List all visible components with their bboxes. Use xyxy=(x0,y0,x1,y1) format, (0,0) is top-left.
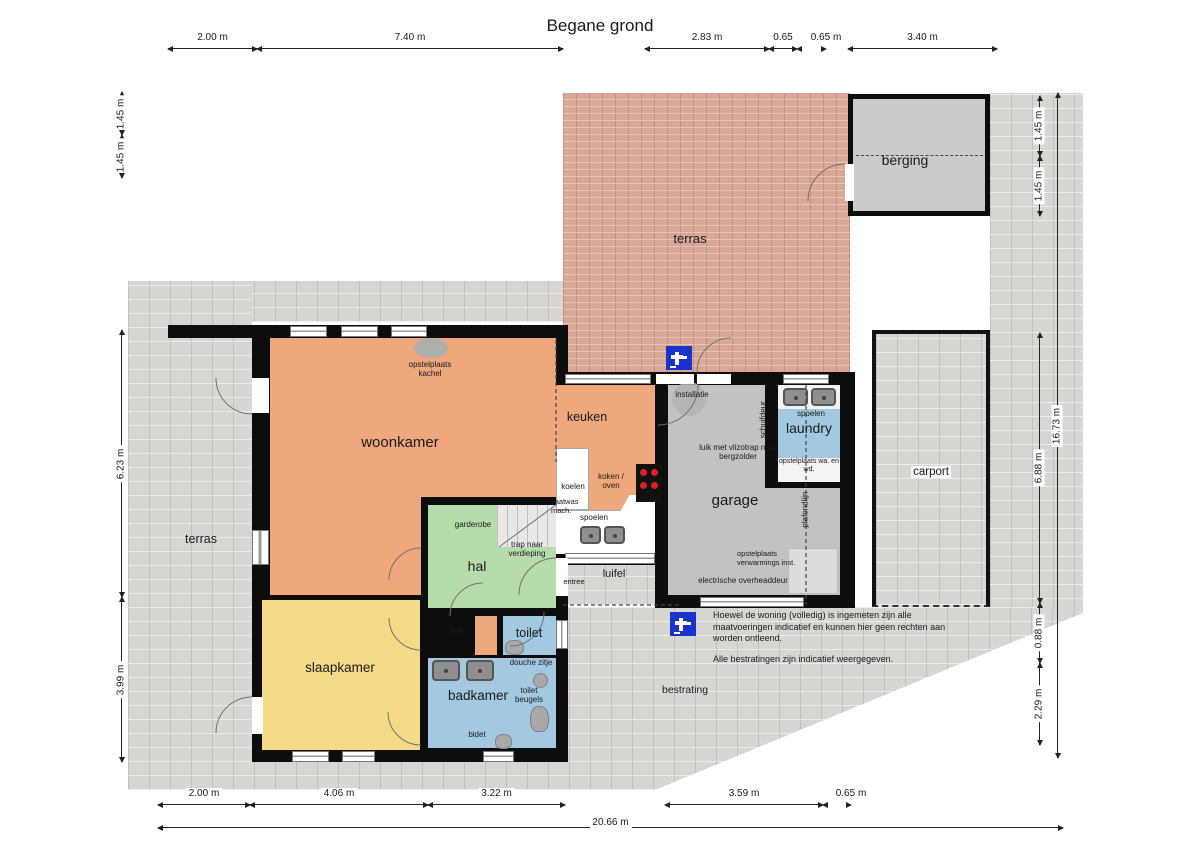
room-label-luifel: luifel xyxy=(592,568,636,581)
window xyxy=(565,374,651,384)
door-opening xyxy=(252,378,269,413)
window xyxy=(290,326,327,337)
sink-icon xyxy=(466,660,494,681)
annotation-luik-vlizotrap: luik met vlizotrap naar bergzolder xyxy=(688,443,788,461)
bidet-icon xyxy=(495,734,512,749)
door-opening xyxy=(252,697,263,734)
annotation-douche-zitje: douche zitje xyxy=(508,658,554,667)
room-label-toilet: toilet xyxy=(504,626,554,640)
window xyxy=(483,751,514,762)
sink-icon xyxy=(604,526,625,544)
annotation-opstelplaats-kachel: opstelplaats kachel xyxy=(398,360,462,378)
sink-icon xyxy=(783,388,808,406)
annotation-garderobe: garderobe xyxy=(446,520,500,529)
room-label-berging: berging xyxy=(870,152,940,168)
annotation-koelen: koelen xyxy=(552,482,594,491)
room-label-entree: entree xyxy=(558,578,590,587)
room-label-keuken: keuken xyxy=(562,410,612,424)
annotation-toilet-beugels: toilet beugels xyxy=(506,686,552,704)
window xyxy=(565,553,655,564)
door-opening xyxy=(656,374,694,384)
annotation-bidet: bidet xyxy=(458,730,496,739)
floor-plan: Begane grond xyxy=(0,0,1200,849)
annotation-installatie: installatie xyxy=(666,390,718,399)
annotation-trap-naar-verdieping: trap naar verdieping xyxy=(496,540,558,558)
window xyxy=(556,620,568,649)
window xyxy=(342,751,375,762)
annotation-opstelplaats-verwarming: opstelplaats verwarmings inst. xyxy=(737,550,813,567)
toilet-icon xyxy=(505,640,524,655)
woonkamer-room-lower xyxy=(270,497,421,595)
wall-stub-top-left xyxy=(168,325,258,338)
room-label-garage: garage xyxy=(700,492,770,509)
window xyxy=(783,374,829,384)
room-label-carport: carport xyxy=(896,466,966,479)
note-measure-disclaimer: Hoewel de woning (volledig) is ingemeten… xyxy=(713,610,965,645)
stove-placement-icon xyxy=(414,338,448,358)
annotation-spoelen-keuken: spoelen xyxy=(572,513,616,522)
annotation-koken-oven: koken / oven xyxy=(590,472,632,490)
sink-icon xyxy=(432,660,460,681)
mk-room xyxy=(475,616,497,655)
sink-icon xyxy=(580,526,601,544)
sink-icon xyxy=(811,388,836,406)
room-label-mk: mk. xyxy=(445,626,473,639)
berging-door-opening xyxy=(845,164,854,201)
note-paving-disclaimer: Alle bestratingen zijn indicatief weerge… xyxy=(713,654,913,666)
toilet-icon xyxy=(530,706,549,732)
annotation-plafondlijn: plafondlijn xyxy=(800,480,809,540)
door-opening xyxy=(697,374,731,384)
window xyxy=(341,326,378,337)
annotation-spoelen-laundry: spoelen xyxy=(790,409,832,418)
room-label-slaapkamer: slaapkamer xyxy=(285,660,395,676)
room-label-laundry: laundry xyxy=(774,420,844,436)
garage-door xyxy=(700,597,804,607)
room-label-bestrating: bestrating xyxy=(662,684,742,696)
window xyxy=(391,326,427,337)
window xyxy=(252,530,269,565)
room-label-terras-top: terras xyxy=(660,232,720,247)
room-label-terras-left: terras xyxy=(166,532,236,546)
window xyxy=(292,751,329,762)
annotation-schuifdeur: schuifdeur xyxy=(758,390,767,450)
cooktop-icon xyxy=(636,464,662,502)
annotation-electrische-overheaddeur: electrische overheaddeur xyxy=(688,576,798,585)
room-label-woonkamer: woonkamer xyxy=(350,434,450,451)
room-label-hal: hal xyxy=(460,558,494,574)
